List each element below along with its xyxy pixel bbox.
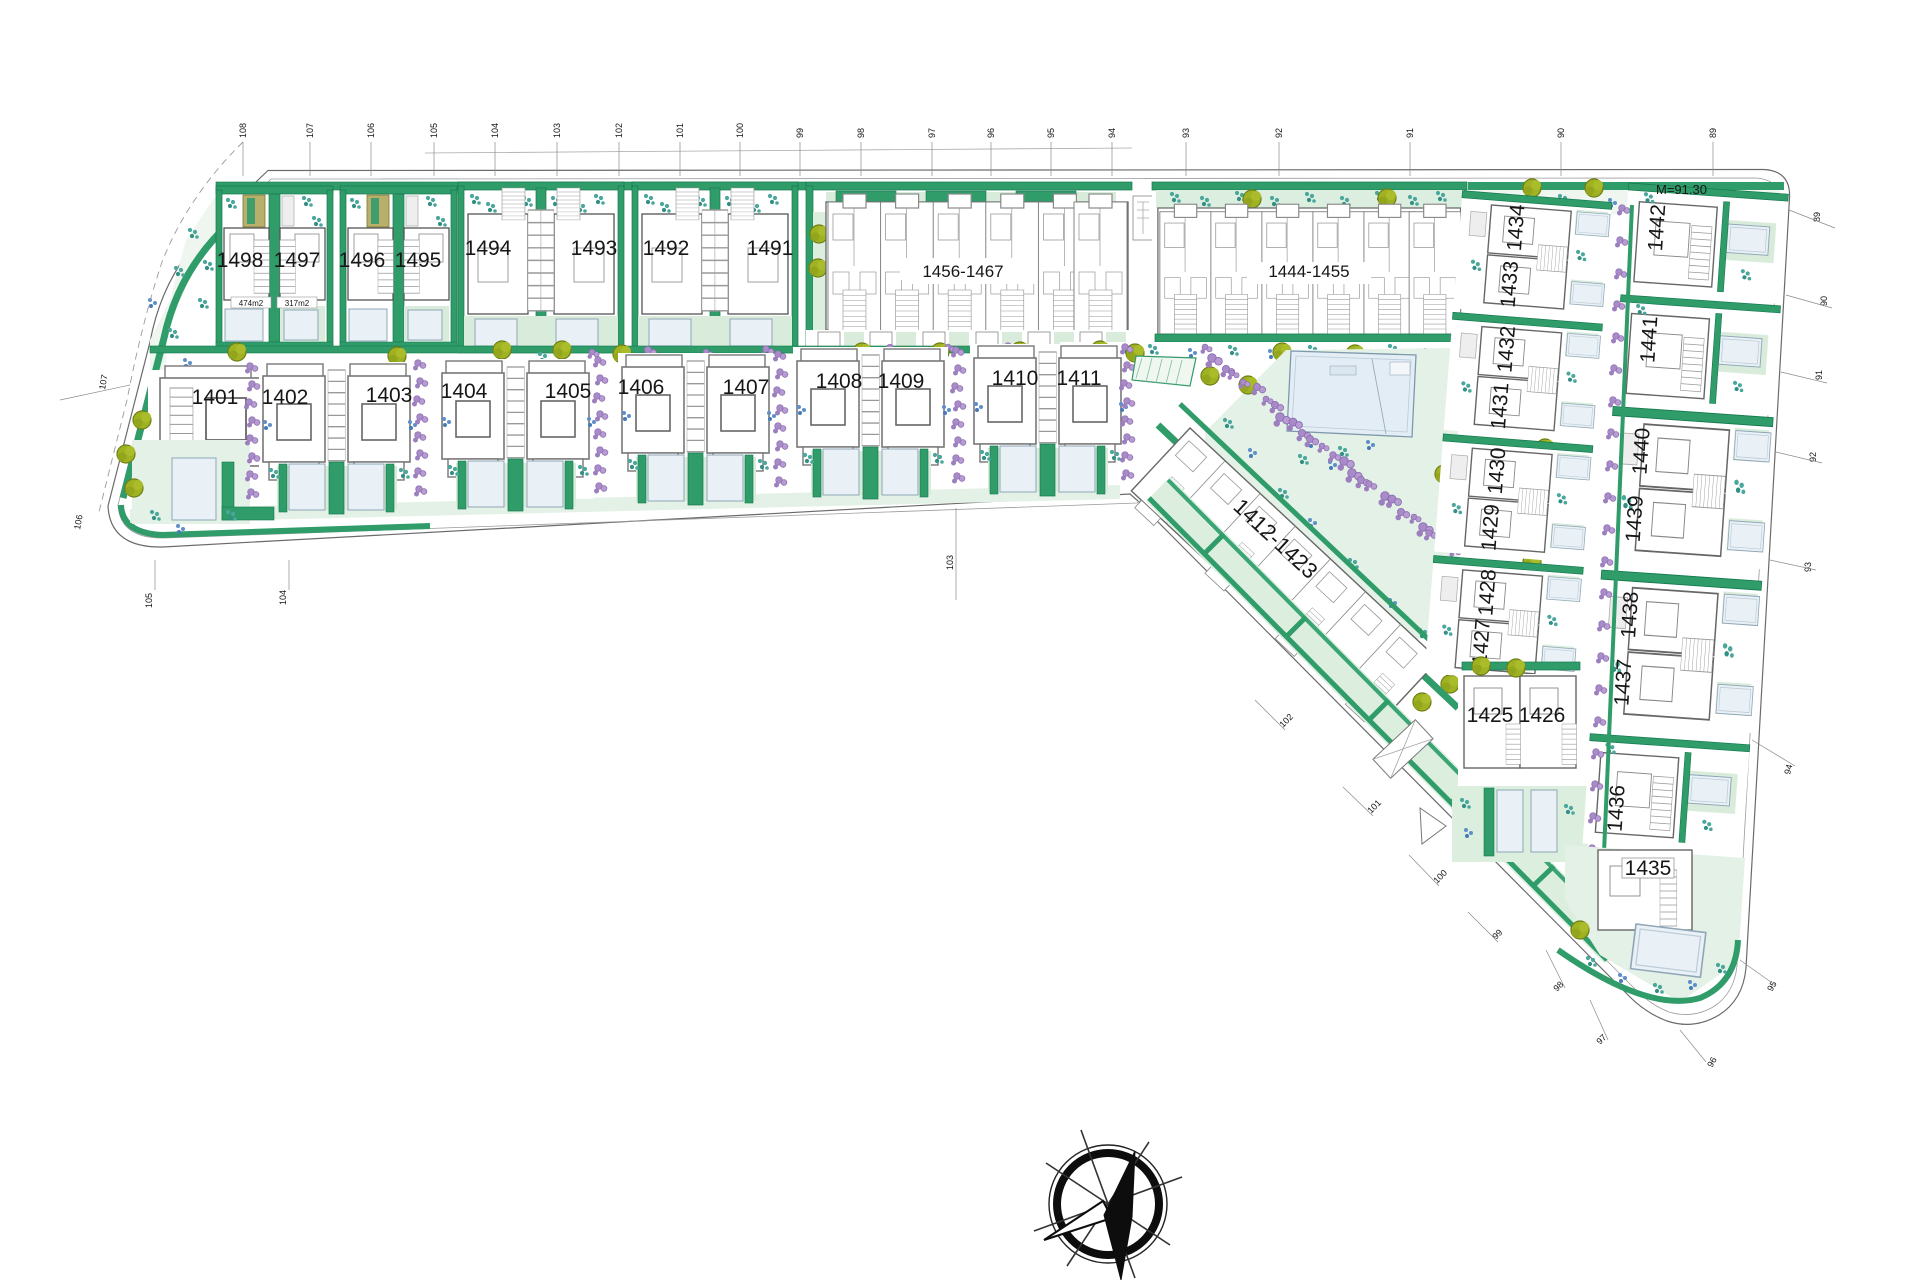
svg-text:100: 100	[735, 123, 745, 138]
svg-text:1402: 1402	[262, 386, 309, 409]
svg-text:94: 94	[1107, 128, 1117, 138]
svg-text:1438: 1438	[1617, 591, 1643, 639]
svg-text:107: 107	[305, 123, 315, 138]
svg-text:103: 103	[552, 123, 562, 138]
svg-text:1494: 1494	[465, 237, 512, 260]
svg-text:93: 93	[1181, 128, 1191, 138]
svg-text:1408: 1408	[816, 370, 863, 393]
svg-text:89: 89	[1812, 212, 1822, 222]
svg-text:101: 101	[675, 123, 685, 138]
svg-text:474m2: 474m2	[239, 299, 264, 308]
svg-text:1437: 1437	[1610, 658, 1636, 706]
svg-text:104: 104	[490, 123, 500, 138]
svg-text:1498: 1498	[217, 249, 264, 272]
svg-text:89: 89	[1708, 128, 1718, 138]
svg-text:97: 97	[927, 128, 937, 138]
svg-text:1491: 1491	[747, 237, 794, 260]
svg-text:1433: 1433	[1497, 260, 1524, 308]
svg-text:105: 105	[144, 593, 154, 608]
svg-text:90: 90	[1556, 128, 1566, 138]
svg-text:1439: 1439	[1622, 495, 1648, 543]
svg-text:1434: 1434	[1503, 203, 1530, 252]
svg-text:108: 108	[238, 123, 248, 138]
svg-text:1428: 1428	[1474, 568, 1501, 616]
svg-text:102: 102	[614, 123, 624, 138]
svg-text:1444-1455: 1444-1455	[1268, 262, 1349, 281]
svg-text:1425: 1425	[1467, 704, 1514, 727]
svg-text:91: 91	[1814, 370, 1824, 380]
svg-text:1435: 1435	[1625, 857, 1672, 880]
svg-text:103: 103	[945, 555, 955, 570]
svg-text:1410: 1410	[992, 367, 1039, 390]
svg-text:106: 106	[366, 123, 376, 138]
svg-text:1409: 1409	[878, 370, 925, 393]
svg-text:1406: 1406	[618, 376, 665, 399]
svg-text:1442: 1442	[1644, 204, 1670, 252]
svg-text:1429: 1429	[1477, 503, 1504, 551]
svg-text:1440: 1440	[1628, 427, 1654, 475]
svg-text:1456-1467: 1456-1467	[922, 262, 1003, 281]
svg-text:92: 92	[1274, 128, 1284, 138]
svg-text:98: 98	[856, 128, 866, 138]
svg-text:96: 96	[986, 128, 996, 138]
svg-text:1404: 1404	[441, 380, 488, 403]
svg-text:317m2: 317m2	[285, 299, 310, 308]
svg-text:1407: 1407	[723, 376, 770, 399]
svg-text:93: 93	[1803, 562, 1813, 572]
svg-text:1430: 1430	[1484, 447, 1511, 495]
svg-text:1493: 1493	[571, 237, 618, 260]
svg-text:91: 91	[1405, 128, 1415, 138]
svg-text:1431: 1431	[1487, 382, 1514, 430]
svg-text:1401: 1401	[192, 386, 239, 409]
svg-text:104: 104	[278, 590, 288, 605]
svg-text:95: 95	[1046, 128, 1056, 138]
svg-text:1441: 1441	[1636, 315, 1662, 363]
svg-text:1405: 1405	[545, 380, 592, 403]
svg-text:1495: 1495	[395, 249, 442, 272]
svg-text:1496: 1496	[339, 249, 386, 272]
svg-text:99: 99	[795, 128, 805, 138]
svg-text:1497: 1497	[274, 249, 321, 272]
svg-text:1411: 1411	[1056, 367, 1101, 390]
svg-text:1432: 1432	[1493, 325, 1520, 373]
svg-text:1492: 1492	[643, 237, 690, 260]
svg-text:1403: 1403	[366, 384, 413, 407]
svg-text:105: 105	[429, 123, 439, 138]
svg-text:1426: 1426	[1519, 704, 1566, 727]
svg-text:M=91.30: M=91.30	[1656, 182, 1707, 197]
